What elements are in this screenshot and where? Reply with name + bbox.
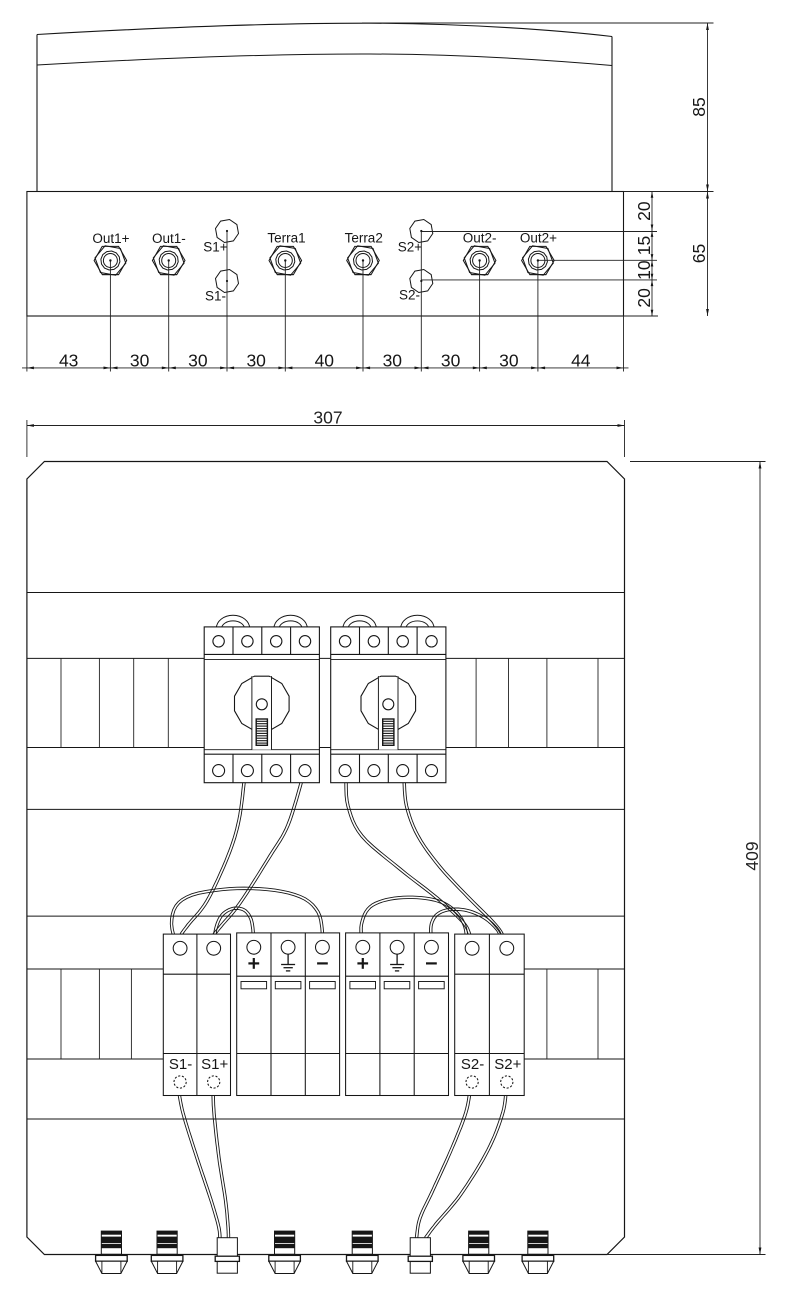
svg-text:S2-: S2- [399, 288, 420, 303]
svg-text:Out2+: Out2+ [520, 231, 557, 246]
svg-text:30: 30 [499, 350, 519, 370]
svg-text:Out1-: Out1- [152, 231, 186, 246]
svg-text:20: 20 [634, 201, 654, 221]
svg-text:85: 85 [689, 97, 709, 116]
svg-text:307: 307 [313, 408, 342, 428]
svg-text:S1-: S1- [205, 289, 226, 304]
svg-text:Out1+: Out1+ [92, 231, 129, 246]
svg-text:10: 10 [634, 260, 654, 280]
svg-text:S2+: S2+ [494, 1056, 521, 1073]
svg-text:409: 409 [742, 841, 762, 870]
svg-text:Terra1: Terra1 [267, 231, 305, 246]
svg-text:20: 20 [634, 288, 654, 308]
svg-text:65: 65 [689, 244, 709, 263]
svg-text:30: 30 [383, 350, 403, 370]
svg-text:40: 40 [315, 350, 335, 370]
svg-text:Terra2: Terra2 [345, 231, 383, 246]
svg-text:30: 30 [246, 350, 266, 370]
svg-text:15: 15 [634, 236, 654, 255]
svg-text:S2+: S2+ [398, 240, 423, 255]
svg-text:30: 30 [441, 350, 461, 370]
svg-text:Out2-: Out2- [463, 231, 497, 246]
svg-text:30: 30 [188, 350, 208, 370]
svg-text:30: 30 [130, 350, 150, 370]
svg-text:S1+: S1+ [203, 240, 228, 255]
svg-text:S1+: S1+ [201, 1056, 228, 1073]
svg-text:S2-: S2- [461, 1056, 484, 1073]
svg-text:S1-: S1- [169, 1056, 192, 1073]
svg-text:43: 43 [59, 350, 78, 370]
svg-text:44: 44 [571, 350, 591, 370]
